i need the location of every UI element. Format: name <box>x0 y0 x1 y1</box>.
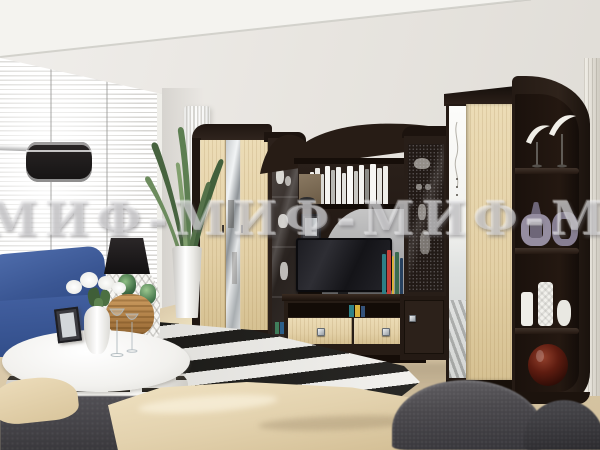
mirror-rug-reflection <box>449 300 466 378</box>
corner-shelf-board <box>515 328 579 334</box>
blanket-fold <box>138 391 279 417</box>
cocktail-glasses <box>108 306 142 362</box>
showroom-photo: МИФ-МИФ-МИФ-МИФ-МИФ <box>0 0 600 450</box>
folder <box>349 305 354 317</box>
arc-floor-lamp-shade <box>26 142 92 182</box>
crescent-bird-sculptures <box>522 106 578 168</box>
lamp-shade-rim <box>26 150 92 152</box>
tv-bench-drawer <box>288 318 352 344</box>
flower-vase <box>84 306 110 354</box>
vase-highlight <box>536 350 544 362</box>
watermark-band: МИФ-МИФ-МИФ-МИФ-МИФ <box>0 190 600 252</box>
white-flower-puff <box>112 282 126 294</box>
maroon-round-vase <box>528 344 568 386</box>
white-flower-puff <box>80 272 98 288</box>
corner-shelf-board <box>515 168 579 174</box>
strip-dot <box>456 178 458 180</box>
door-handle <box>409 315 416 322</box>
watermark-text: МИФ-МИФ-МИФ-МИФ-МИФ <box>0 192 600 247</box>
folder <box>355 305 360 317</box>
folder <box>361 306 365 317</box>
strip-dot <box>456 186 458 188</box>
mirror-reflection <box>232 252 237 284</box>
drawer-handle <box>317 328 325 336</box>
white-pot-vase <box>557 300 571 326</box>
right-base-cabinet <box>400 294 446 360</box>
right-base-cabinet-door <box>404 300 444 354</box>
white-cylinder-vase <box>521 292 533 326</box>
photo <box>60 312 77 338</box>
photo-frame-table <box>54 307 82 344</box>
drawer-handle <box>382 328 390 336</box>
white-diamond-vase <box>538 282 553 326</box>
